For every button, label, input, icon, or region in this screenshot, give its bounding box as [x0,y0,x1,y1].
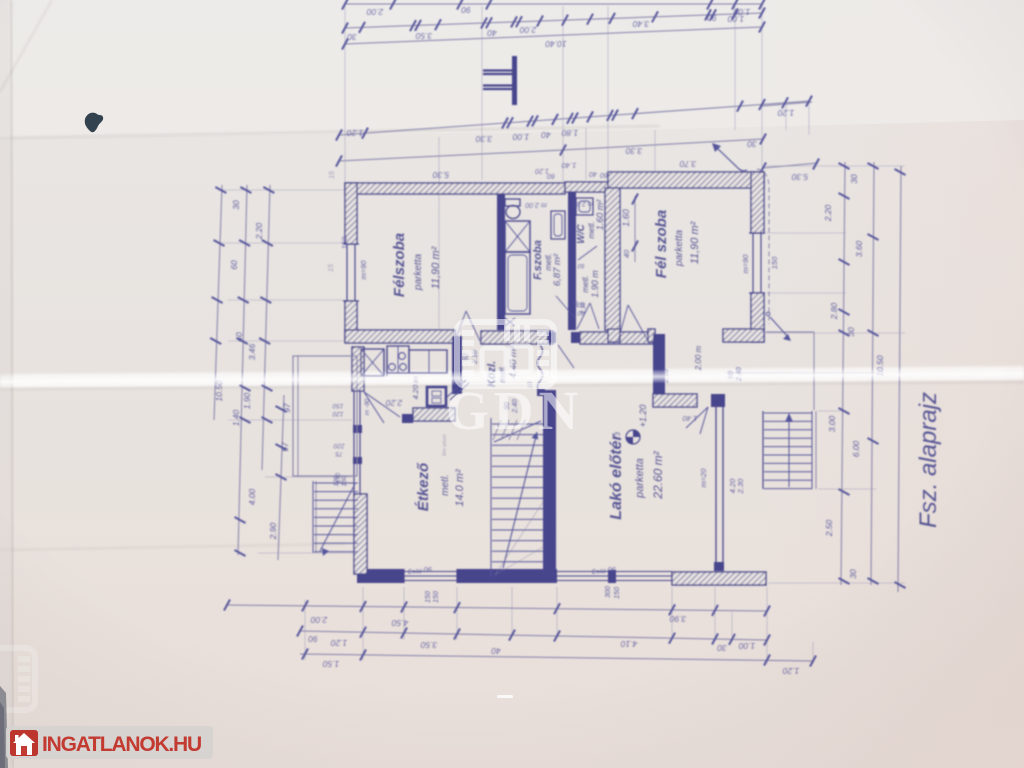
svg-text:INGATLANOK.HU: INGATLANOK.HU [42,733,201,756]
